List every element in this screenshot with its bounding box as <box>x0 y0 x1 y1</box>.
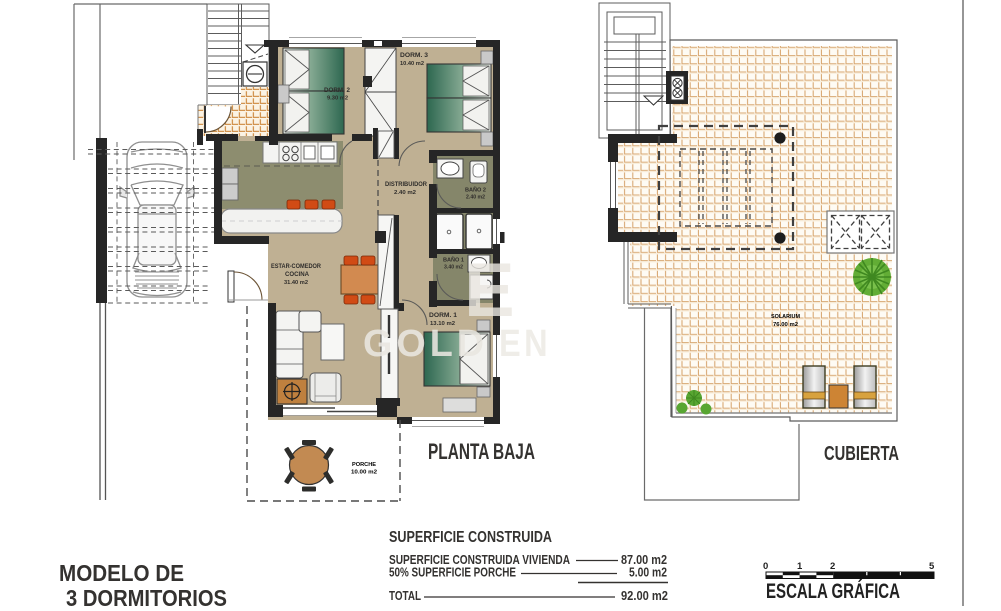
svg-text:9.30 m2: 9.30 m2 <box>327 96 348 102</box>
svg-text:2.40 m2: 2.40 m2 <box>466 195 485 201</box>
svg-text:ESTAR-COMEDOR: ESTAR-COMEDOR <box>271 264 322 270</box>
svg-text:TOTAL: TOTAL <box>389 589 421 603</box>
svg-text:5: 5 <box>929 561 935 572</box>
svg-text:10.40 m2: 10.40 m2 <box>400 61 424 67</box>
svg-text:CUBIERTA: CUBIERTA <box>824 443 899 465</box>
svg-text:ESCALA GRÁFICA: ESCALA GRÁFICA <box>766 580 900 603</box>
svg-text:3 DORMITORIOS: 3 DORMITORIOS <box>66 585 227 606</box>
svg-text:31.40 m2: 31.40 m2 <box>284 280 308 286</box>
svg-text:3.40 m2: 3.40 m2 <box>444 265 463 271</box>
svg-text:SUPERFICIE CONSTRUIDA: SUPERFICIE CONSTRUIDA <box>389 529 552 546</box>
svg-text:5.00 m2: 5.00 m2 <box>629 566 667 580</box>
svg-text:2: 2 <box>830 561 835 572</box>
svg-text:BAÑO 2: BAÑO 2 <box>465 187 486 194</box>
svg-text:PLANTA BAJA: PLANTA BAJA <box>428 439 535 464</box>
svg-text:92.00 m2: 92.00 m2 <box>621 589 668 603</box>
svg-text:76.00 m2: 76.00 m2 <box>773 322 798 328</box>
svg-text:MODELO DE: MODELO DE <box>59 560 184 586</box>
svg-text:0: 0 <box>763 561 768 572</box>
svg-text:E: E <box>464 248 515 333</box>
svg-text:DORM. 1: DORM. 1 <box>429 312 458 319</box>
svg-text:50% SUPERFICIE PORCHE: 50% SUPERFICIE PORCHE <box>389 566 516 580</box>
svg-text:SOLARIUM: SOLARIUM <box>771 314 800 320</box>
svg-text:2.40 m2: 2.40 m2 <box>394 190 416 196</box>
svg-text:PORCHE: PORCHE <box>352 462 376 468</box>
svg-text:COCINA: COCINA <box>285 272 310 278</box>
svg-text:DORM. 3: DORM. 3 <box>400 52 429 59</box>
svg-text:BAÑO 1: BAÑO 1 <box>443 257 464 264</box>
svg-text:DISTRIBUIDOR: DISTRIBUIDOR <box>385 182 428 188</box>
svg-text:DORM. 2: DORM. 2 <box>324 87 351 94</box>
svg-text:1: 1 <box>797 561 803 572</box>
svg-text:10.00 m2: 10.00 m2 <box>351 470 377 476</box>
